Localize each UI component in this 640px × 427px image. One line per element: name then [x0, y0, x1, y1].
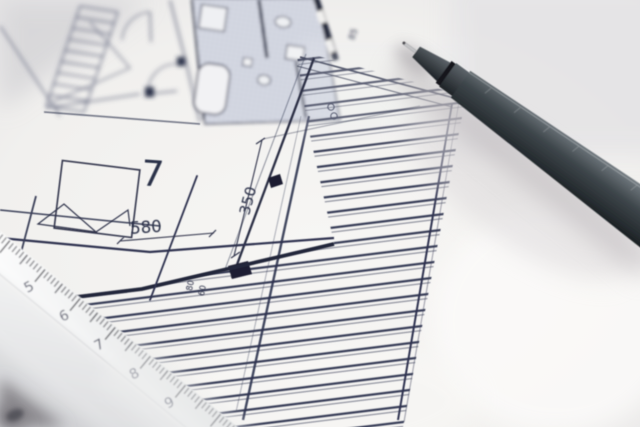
photo-floor-plan-scene: 85 580 — [0, 0, 640, 427]
room-number-label: 7 — [140, 153, 166, 195]
bathtub — [193, 62, 232, 116]
washer — [198, 4, 227, 31]
dimension-width-label: 580 — [130, 217, 163, 238]
scene-canvas: 85 580 — [0, 0, 640, 427]
